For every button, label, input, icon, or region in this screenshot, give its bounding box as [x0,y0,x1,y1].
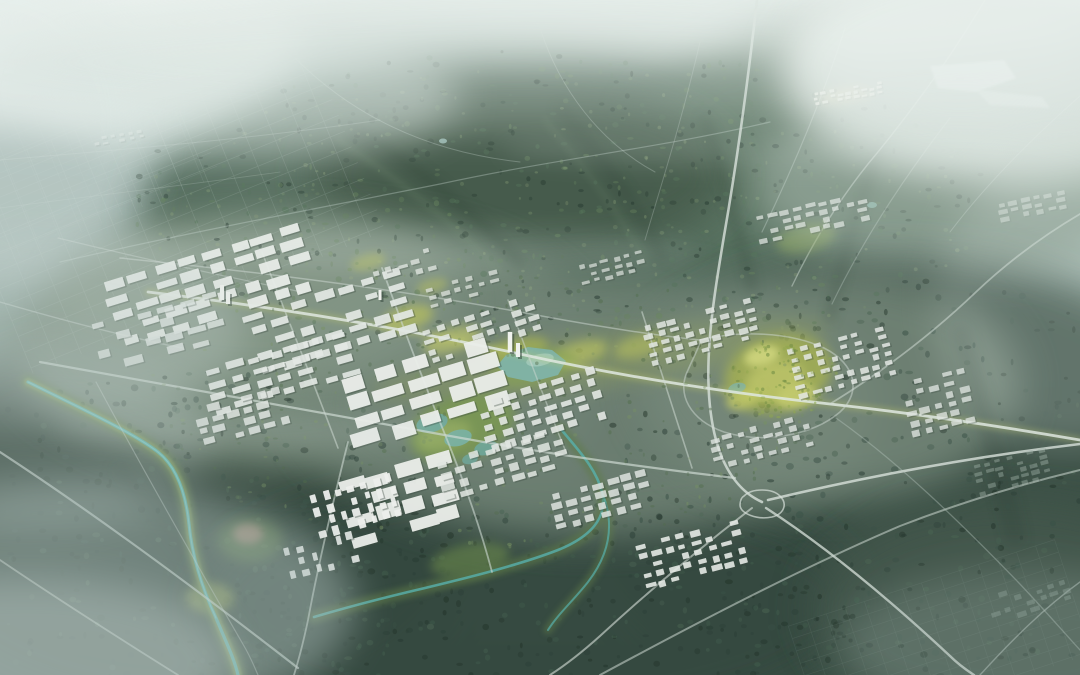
city-masterplan-aerial-rendering [0,0,1080,675]
mist-streak [50,412,450,448]
mist-streak [80,228,700,272]
mist-streak [500,132,1020,168]
mountain-pond [439,139,447,144]
masterplan-scene [0,0,1080,675]
